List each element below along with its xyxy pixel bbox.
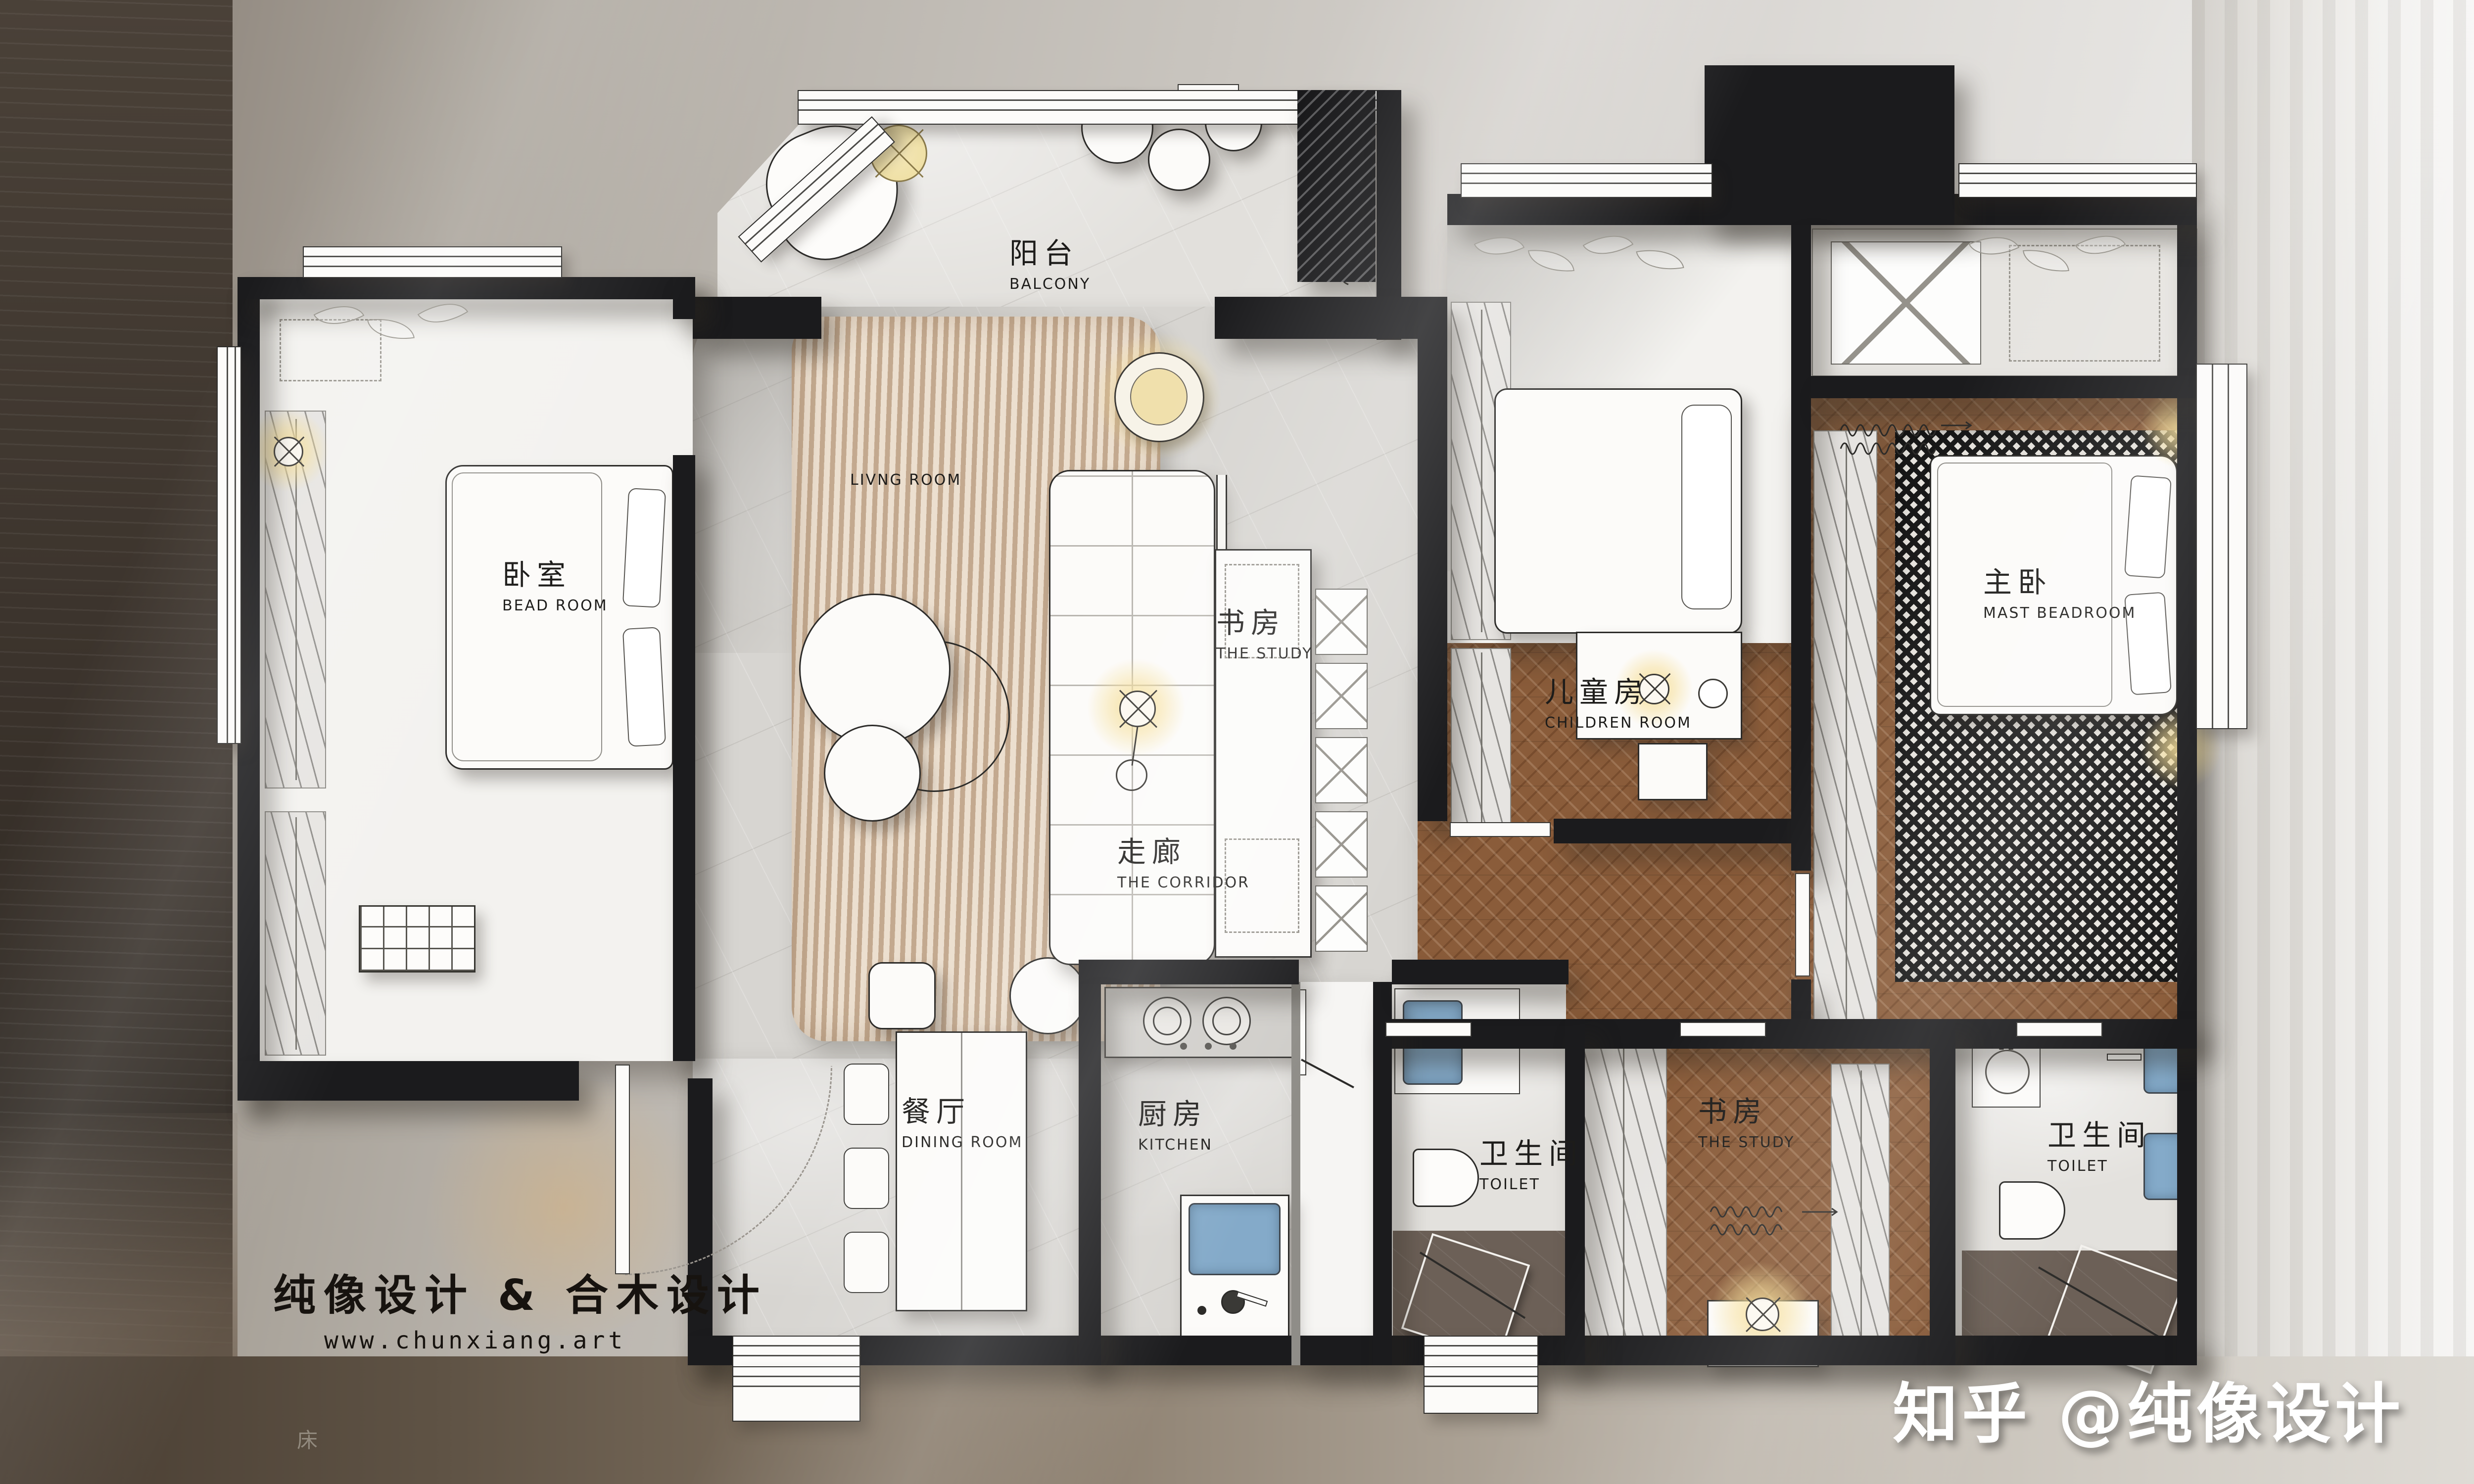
pendant-inner <box>1130 368 1188 425</box>
label-toilet-right: 卫生间 TOILET <box>2047 1112 2151 1175</box>
burner-ring <box>1153 1007 1182 1035</box>
master-window-band <box>1958 163 2197 198</box>
window-seat-cushion <box>1315 737 1368 803</box>
wardrobe-hangers-master <box>1813 430 1877 1033</box>
bed-blanket <box>452 472 602 761</box>
label-balcony: 阳台 BALCONY <box>1009 230 1091 293</box>
ceiling-light-icon <box>1119 691 1156 727</box>
wardrobe-hangers <box>1451 648 1511 833</box>
dining-chair <box>844 1232 889 1293</box>
door-leaf <box>1795 873 1810 976</box>
bottom-opening <box>1424 1336 1538 1367</box>
label-bedroom: 卧室 BEAD ROOM <box>502 552 608 614</box>
floor-pouf <box>1009 957 1087 1034</box>
coffee-table-large <box>799 594 951 745</box>
wall-bath-top <box>1392 960 1569 984</box>
partition-thin <box>1291 982 1300 1365</box>
wall <box>693 297 821 339</box>
floorplan-poster: 床 <box>0 0 2474 1484</box>
shaft-block <box>1705 65 1954 225</box>
stool-square <box>868 962 936 1029</box>
window-seat-cushion <box>1315 589 1368 655</box>
wall <box>1554 819 1791 843</box>
wall <box>1373 982 1392 1365</box>
floorlamp-base <box>1116 759 1147 791</box>
dining-chair <box>844 1148 889 1209</box>
bed-children <box>1494 388 1742 634</box>
studio-brand-text: 纯像设计 & 合木设计 <box>273 1260 767 1322</box>
door-leaf <box>1385 1022 1472 1037</box>
wall <box>1930 1019 1955 1365</box>
squiggle-annotation <box>1708 1201 1856 1241</box>
bedroom-window-band <box>303 246 562 278</box>
background-bed-note: 床 <box>297 1424 318 1454</box>
dining-chair <box>844 1064 889 1125</box>
pillow-long <box>1681 405 1732 609</box>
stove-burner <box>1143 997 1191 1045</box>
entry-steps <box>1424 1366 1538 1414</box>
wall-kitchen-top <box>1079 960 1299 984</box>
label-kitchen: 厨房 KITCHEN <box>1138 1091 1213 1154</box>
wardrobe-hangers <box>265 811 326 1056</box>
stove-burner <box>1202 997 1251 1045</box>
kitchen-sink <box>1189 1203 1281 1275</box>
window-seat-cushion <box>1315 885 1368 952</box>
stove-knob <box>1180 1043 1187 1050</box>
desk-chair <box>1698 679 1728 708</box>
wall <box>1791 225 1811 871</box>
label-toilet-left: 卫生间 TOILET <box>1479 1130 1583 1193</box>
wall <box>238 277 695 299</box>
ceiling-light-icon <box>274 437 303 466</box>
children-window-band <box>1461 163 1713 198</box>
entry-door-leaf <box>615 1065 630 1274</box>
drain-dot <box>1197 1306 1206 1315</box>
label-children: 儿童房 CHILDREN ROOM <box>1545 669 1692 732</box>
faucet-handle <box>2107 1054 2141 1061</box>
label-study-center: 书房 THE STUDY <box>1216 600 1313 662</box>
window-seat-cushion <box>1315 663 1368 729</box>
wall-kitchen-left <box>1079 984 1101 1365</box>
window-seat-cushion <box>1315 811 1368 878</box>
stove-knob <box>1230 1043 1237 1050</box>
coffee-table-small <box>824 725 921 822</box>
wardrobe-hangers <box>1578 1034 1667 1362</box>
label-dining: 餐厅 DINING ROOM <box>902 1088 1023 1151</box>
pendant-lamp-icon <box>1114 352 1204 442</box>
entry-steps <box>732 1366 860 1422</box>
studio-website-text: www.chunxiang.art <box>324 1327 626 1354</box>
door-leaf <box>1680 1022 1766 1037</box>
bay-window-bedroom <box>217 346 241 744</box>
closet-cell <box>1831 241 1981 365</box>
label-living: LIVNG ROOM <box>850 467 961 489</box>
door-leaf <box>2016 1022 2102 1037</box>
burner-ring <box>1212 1007 1241 1035</box>
wall <box>1215 297 1418 339</box>
balcony-hatch-block <box>1297 90 1376 282</box>
floor-hallway <box>1299 982 1373 1365</box>
pillow <box>622 627 666 747</box>
label-study-bottom: 书房 THE STUDY <box>1698 1088 1795 1151</box>
toilet <box>1999 1181 2065 1240</box>
bay-window-master <box>2196 364 2247 729</box>
curtain-photo-right <box>2192 0 2474 1484</box>
ceiling-light-icon <box>1746 1298 1779 1331</box>
zhihu-watermark: 知乎 @纯像设计 <box>1893 1361 2404 1456</box>
wall <box>1418 297 1447 821</box>
washer-drum <box>1985 1050 2030 1094</box>
label-corridor: 走廊 THE CORRIDOR <box>1117 829 1250 891</box>
wall-master-top <box>1811 376 2197 398</box>
wall <box>673 455 695 1061</box>
balcony-chair <box>1148 129 1210 191</box>
bed-double <box>445 465 673 770</box>
ac-unit-dashed <box>280 319 381 381</box>
wall <box>238 1061 579 1101</box>
toilet <box>1413 1149 1479 1207</box>
balcony-window-band <box>798 90 1378 125</box>
door-leaf <box>1450 822 1551 837</box>
bench-grid <box>359 905 476 973</box>
squiggle-annotation <box>1838 418 2001 463</box>
pillow <box>622 488 666 608</box>
label-master: 主卧 MAST BEADROOM <box>1983 559 2136 622</box>
bottom-opening <box>732 1336 860 1367</box>
dining-table <box>896 1031 1027 1311</box>
wall <box>673 277 695 319</box>
side-table <box>1638 743 1708 800</box>
stove-knob <box>1205 1043 1212 1050</box>
